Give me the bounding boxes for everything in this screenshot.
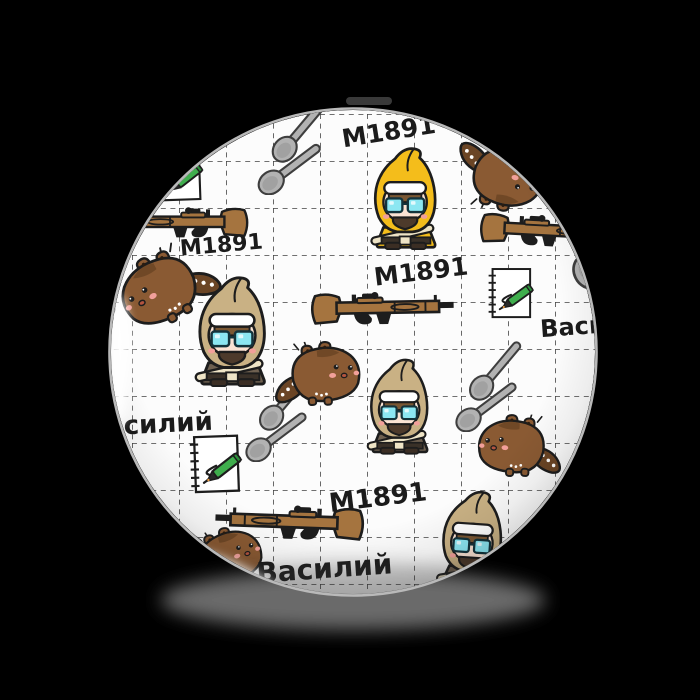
rim-reflection-artifact [346,97,392,105]
dome-shading [111,110,595,594]
badge-photo: М1891 М1891 М1891 М1891 Василий Василий … [0,0,700,700]
